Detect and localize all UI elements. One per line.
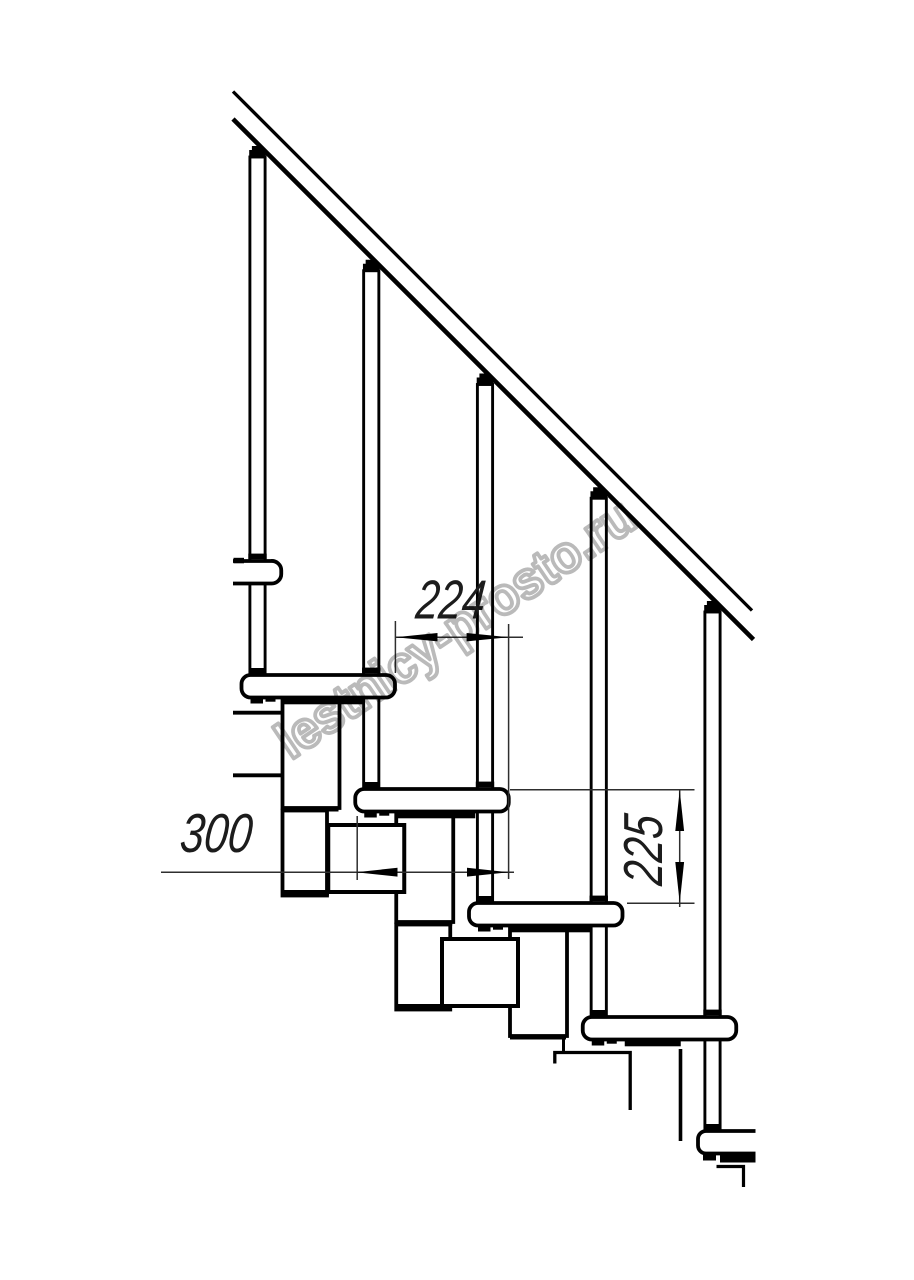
svg-text:225: 225: [614, 811, 675, 889]
svg-text:300: 300: [177, 803, 256, 864]
